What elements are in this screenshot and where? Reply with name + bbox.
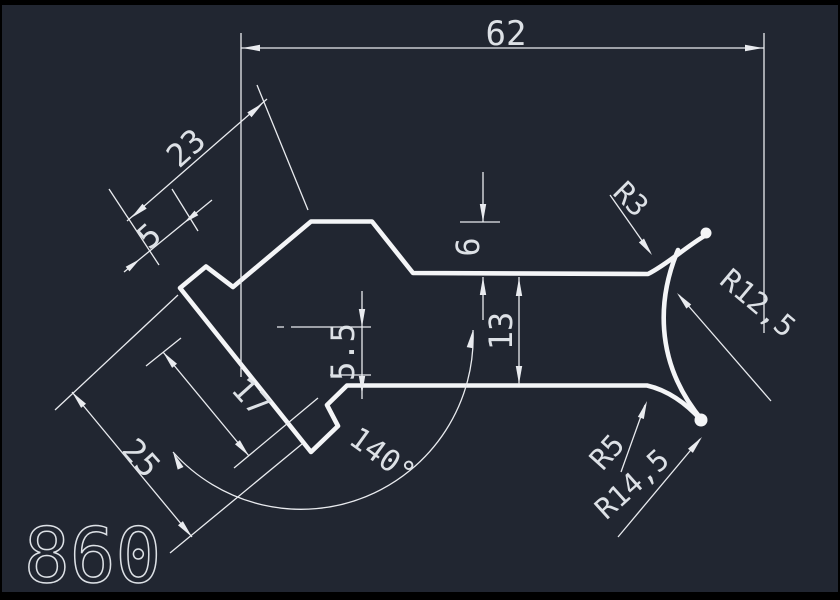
- dim-top-offset-label: 6: [449, 237, 487, 256]
- dim-overall-width-label: 62: [486, 14, 527, 54]
- part-number-label: 860: [24, 511, 161, 600]
- profile-upper-lip-ball: [701, 228, 712, 239]
- drawing-canvas[interactable]: 62 23 5 17 25: [0, 0, 840, 600]
- profile-lower-lip-ball: [695, 414, 708, 427]
- dim-channel-height-label: 13: [482, 312, 520, 351]
- cad-viewport[interactable]: 62 23 5 17 25: [0, 0, 840, 600]
- drawing-sheet: [2, 5, 838, 592]
- dim-step-height-label: 5.5: [324, 323, 362, 381]
